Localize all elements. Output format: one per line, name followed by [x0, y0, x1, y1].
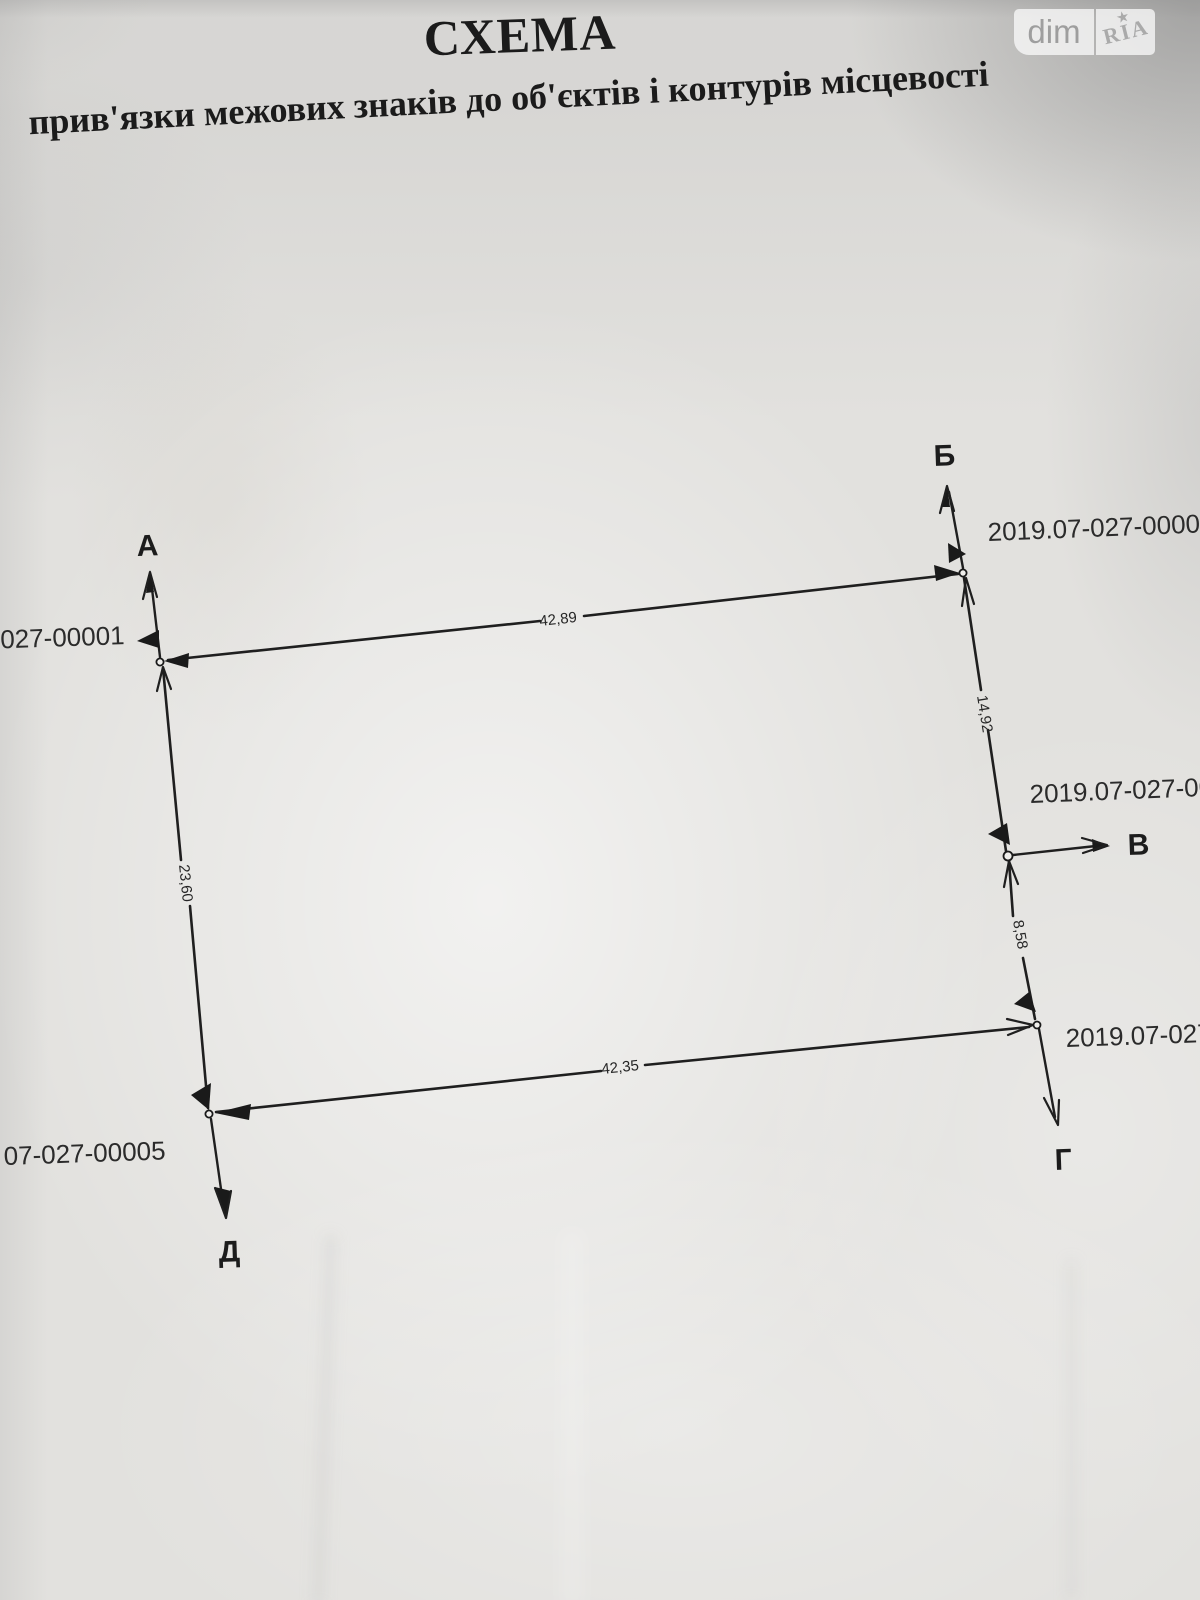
svg-text:23,60: 23,60: [175, 864, 196, 903]
svg-text:42,89: 42,89: [539, 609, 578, 630]
svg-text:14,92: 14,92: [973, 694, 996, 734]
svg-text:2019.07-027-00002: 2019.07-027-00002: [987, 508, 1200, 547]
svg-text:2019.07-027-00003: 2019.07-027-00003: [1029, 770, 1200, 809]
svg-text:Б: Б: [933, 439, 956, 473]
svg-text:А: А: [136, 529, 159, 563]
svg-text:В: В: [1127, 828, 1150, 862]
svg-text:2019.07-027-00004: 2019.07-027-00004: [1065, 1015, 1200, 1053]
svg-text:07-027-00005: 07-027-00005: [3, 1135, 166, 1171]
svg-text:8,58: 8,58: [1009, 919, 1031, 951]
svg-text:Г: Г: [1054, 1143, 1072, 1177]
svg-text:2019.07-027-00001: 2019.07-027-00001: [0, 620, 125, 658]
svg-text:42,35: 42,35: [601, 1057, 640, 1078]
svg-text:Д: Д: [218, 1235, 241, 1269]
